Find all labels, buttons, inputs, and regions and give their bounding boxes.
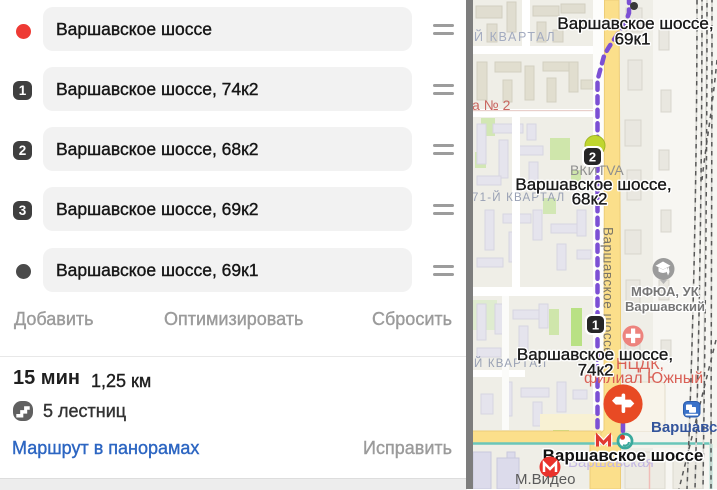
svg-text:74к2: 74к2: [578, 361, 614, 380]
svg-text:Варшавский: Варшавский: [625, 299, 705, 314]
svg-text:2: 2: [589, 150, 596, 165]
svg-text:МФЮА, УК: МФЮА, УК: [631, 284, 699, 299]
svg-text:1: 1: [592, 318, 599, 333]
svg-text:Й КВАРТАЛ: Й КВАРТАЛ: [474, 29, 556, 44]
svg-text:Варшавск: Варшавск: [651, 419, 717, 436]
svg-text:69к1: 69к1: [615, 30, 651, 49]
svg-text:68к2: 68к2: [572, 190, 608, 209]
svg-text:Варшавское шоссе: Варшавское шоссе: [601, 227, 616, 355]
svg-text:а № 2: а № 2: [473, 97, 511, 113]
svg-text:М.Видео: М.Видео: [515, 471, 575, 488]
